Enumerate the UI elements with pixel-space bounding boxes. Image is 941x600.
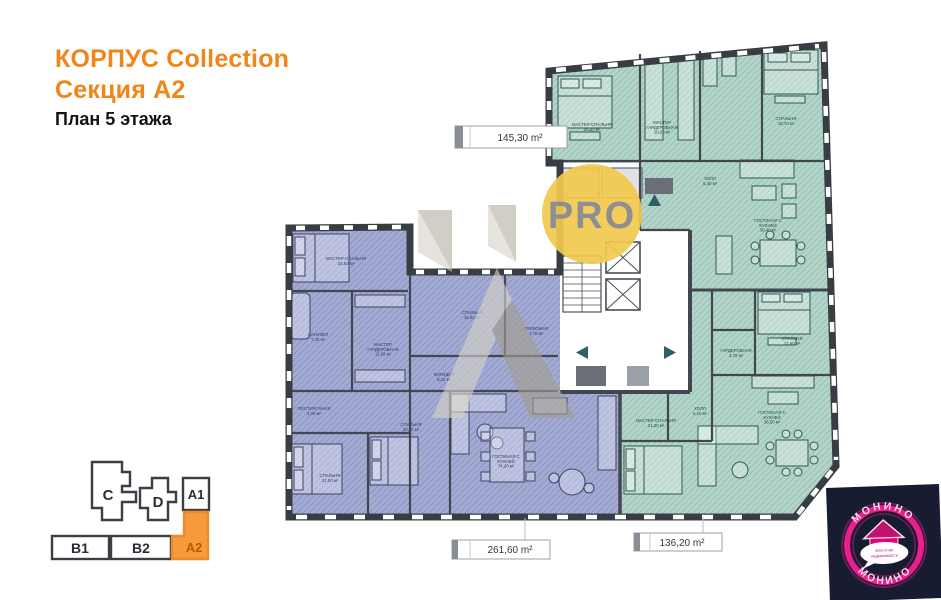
area-label-bottom-left: 261,60 m² xyxy=(452,518,550,559)
pro-watermark-text: PRO xyxy=(548,195,636,237)
svg-text:136,20 m²: 136,20 m² xyxy=(659,538,705,549)
area-label-bottom-right: 136,20 m² xyxy=(634,517,722,551)
duct-shaft xyxy=(645,178,673,194)
area-label-top: 145,30 m² xyxy=(455,126,567,148)
minimap-label-b2: B2 xyxy=(132,540,150,556)
arrow-left-icon xyxy=(576,346,588,359)
watermark-pro: PRO xyxy=(542,164,642,264)
room-label: СПАЛЬНЯ18,70 м² xyxy=(776,116,797,126)
minimap-label-b1: B1 xyxy=(71,540,89,556)
room-label: СПАЛЬНЯ21,00 м² xyxy=(320,473,341,483)
duct-shaft xyxy=(576,366,606,386)
svg-text:145,30 m²: 145,30 m² xyxy=(497,133,543,144)
room-label: СПАЛЬНЯ20,30 м² xyxy=(401,422,422,432)
svg-text:261,60 m²: 261,60 m² xyxy=(487,545,533,556)
minimap-label-d: D xyxy=(153,494,164,511)
building-title: КОРПУС Collection xyxy=(55,44,289,75)
logo-tagline-2: недвижимости xyxy=(871,553,898,559)
room-label: ХОЛЛ6,10 м² xyxy=(693,406,708,416)
section-minimap: C D A1 B1 B2 A2 xyxy=(52,462,209,559)
page: КОРПУС Collection Секция А2 План 5 этажа xyxy=(0,0,941,600)
minimap-label-a2: A2 xyxy=(186,540,203,555)
staircase xyxy=(563,256,601,312)
floor-subtitle: План 5 этажа xyxy=(55,107,289,131)
agency-logo: МОНИНО МОНИНО агентство недвижимости xyxy=(826,484,941,600)
minimap-label-a1: A1 xyxy=(188,487,205,502)
title-block: КОРПУС Collection Секция А2 План 5 этажа xyxy=(55,44,289,131)
duct-shaft xyxy=(627,366,649,386)
room-label: СПАЛЬНЯ17,60 м² xyxy=(782,336,803,346)
minimap-label-c: C xyxy=(103,487,114,504)
section-title: Секция А2 xyxy=(55,75,289,106)
minimap-section-c xyxy=(92,462,136,520)
arrow-right-icon xyxy=(664,346,676,359)
room-label: ХОЛЛ5,40 м² xyxy=(703,176,718,186)
